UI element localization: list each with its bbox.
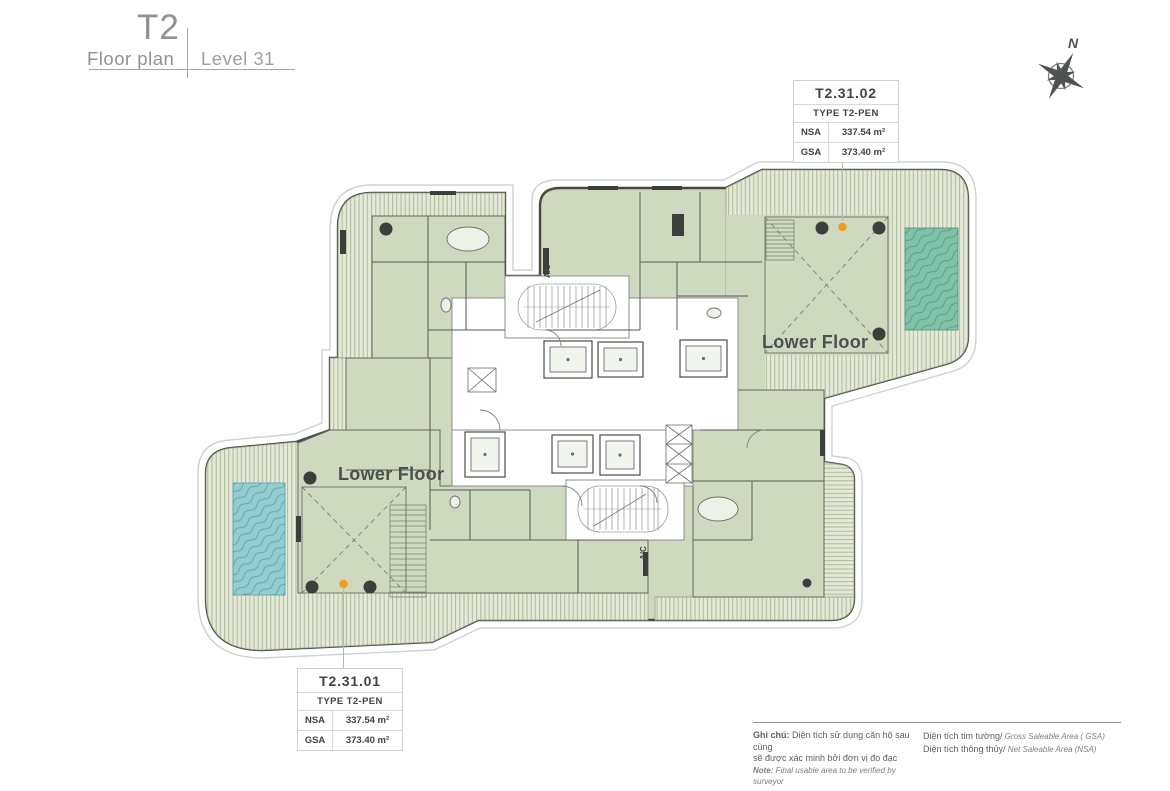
gsa-label: GSA	[794, 143, 829, 162]
nsa-label: NSA	[298, 711, 333, 730]
gsa-def-vi: Diện tích tim tường/	[923, 731, 1002, 741]
legend-rule	[753, 722, 1121, 723]
unit-01-type: TYPE T2-PEN	[298, 693, 402, 711]
legend-note: Ghi chú: Diện tích sử dụng căn hộ sau cù…	[753, 730, 913, 788]
unit-01-id: T2.31.01	[298, 669, 402, 693]
note-line2: sẽ được xác minh bởi đơn vị đo đạc	[753, 753, 913, 765]
ac-label-lower: A/C	[639, 546, 648, 560]
unit-02-gsa-row: GSA 373.40 m²	[794, 143, 898, 162]
unit-02-marker	[838, 223, 846, 231]
unit-02-type: TYPE T2-PEN	[794, 105, 898, 123]
title-divider	[187, 28, 188, 78]
nsa-def-en: Net Saleable Area (NSA)	[1006, 745, 1097, 754]
nsa-value: 337.54 m²	[333, 711, 402, 730]
legend-definitions: Diện tích tim tường/ Gross Saleable Area…	[923, 730, 1105, 788]
nsa-def-vi: Diện tích thông thủy/	[923, 744, 1006, 754]
elevator	[680, 340, 727, 377]
unit-02-info-box: T2.31.02 TYPE T2-PEN NSA 337.54 m² GSA 3…	[793, 80, 899, 163]
compass-star	[1028, 41, 1096, 104]
elevator	[598, 342, 643, 377]
unit-01-info-box: T2.31.01 TYPE T2-PEN NSA 337.54 m² GSA 3…	[297, 668, 403, 751]
gsa-label: GSA	[298, 731, 333, 750]
title-underline	[89, 69, 295, 70]
floor-plan-drawing	[0, 0, 1170, 791]
unit-01-gsa-row: GSA 373.40 m²	[298, 731, 402, 750]
unit-02-id: T2.31.02	[794, 81, 898, 105]
nsa-value: 337.54 m²	[829, 123, 898, 142]
note-en-title: Note:	[753, 766, 773, 775]
north-label: N	[1068, 35, 1079, 51]
project-code: T2	[137, 8, 187, 48]
gsa-value: 373.40 m²	[333, 731, 402, 750]
nsa-label: NSA	[794, 123, 829, 142]
note-title: Ghi chú:	[753, 730, 790, 740]
elevator	[544, 341, 592, 378]
gsa-def-en: Gross Saleable Area ( GSA)	[1002, 732, 1104, 741]
elevator	[465, 432, 505, 477]
note-en-rest: Final usable area to be verified by surv…	[753, 766, 896, 787]
ac-label-upper: A/C	[543, 264, 552, 278]
unit-01-marker	[339, 580, 347, 588]
unit-01-nsa-row: NSA 337.54 m²	[298, 711, 402, 731]
level-label: Level 31	[201, 48, 275, 70]
legend: Ghi chú: Diện tích sử dụng căn hộ sau cù…	[753, 722, 1125, 788]
compass-rose: N	[1028, 32, 1102, 104]
elevator	[600, 435, 640, 475]
lower-floor-label-lower: Lower Floor	[338, 464, 444, 485]
floor-plan-page: T2 Floor plan Level 31 N T2.31.02 TYPE T…	[0, 0, 1170, 791]
elevator	[552, 435, 593, 473]
title-block: T2 Floor plan Level 31	[85, 8, 365, 78]
unit-02-nsa-row: NSA 337.54 m²	[794, 123, 898, 143]
plan-subtitle: Floor plan	[87, 48, 174, 70]
gsa-value: 373.40 m²	[829, 143, 898, 162]
lower-floor-label-upper: Lower Floor	[762, 332, 868, 353]
